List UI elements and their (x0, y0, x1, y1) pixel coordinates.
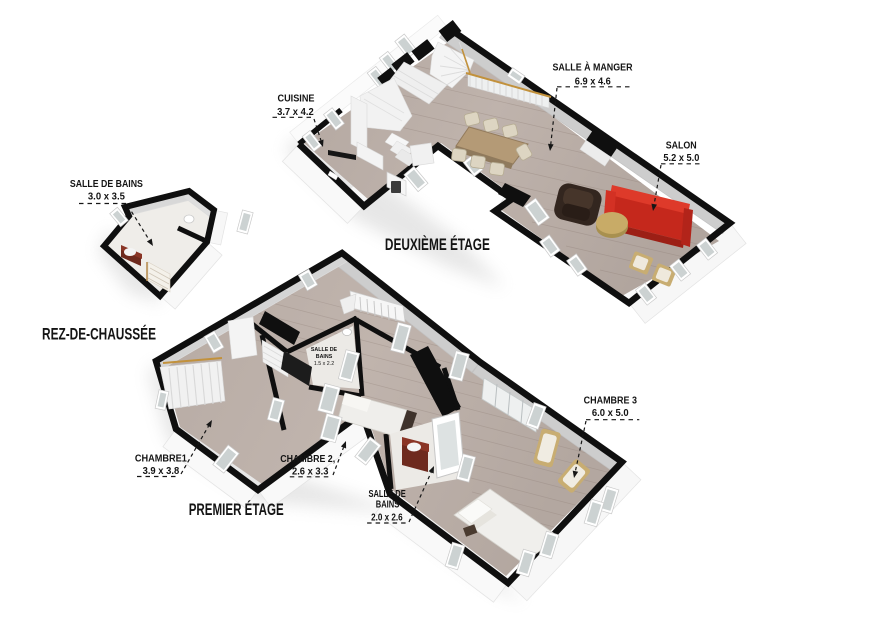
svg-text:SALLE DE: SALLE DE (311, 347, 338, 353)
svg-text:CUISINE: CUISINE (278, 94, 315, 105)
svg-text:2.6 x 3.3: 2.6 x 3.3 (292, 467, 329, 478)
svg-text:SALLE À MANGER: SALLE À MANGER (553, 61, 633, 74)
svg-text:6.0 x 5.0: 6.0 x 5.0 (592, 408, 629, 419)
svg-text:SALON: SALON (666, 141, 697, 152)
svg-text:SALLE DE BAINS: SALLE DE BAINS (70, 179, 143, 190)
svg-text:SALLE DE: SALLE DE (368, 489, 405, 500)
svg-text:3.0 x 3.5: 3.0 x 3.5 (88, 192, 125, 203)
svg-text:CHAMBRE 3: CHAMBRE 3 (584, 396, 637, 407)
svg-text:CHAMBRE 2,: CHAMBRE 2, (280, 454, 335, 465)
svg-text:CHAMBRE1: CHAMBRE1 (135, 453, 187, 464)
svg-text:REZ-DE-CHAUSSÉE: REZ-DE-CHAUSSÉE (42, 324, 156, 343)
svg-text:5.2 x 5.0: 5.2 x 5.0 (663, 153, 699, 164)
svg-text:BAINS: BAINS (376, 499, 400, 510)
svg-text:3.7 x 4.2: 3.7 x 4.2 (277, 107, 314, 118)
svg-text:2.0 x 2.6: 2.0 x 2.6 (371, 512, 403, 523)
svg-text:6.9 x 4.6: 6.9 x 4.6 (575, 77, 611, 88)
svg-text:PREMIER ÉTAGE: PREMIER ÉTAGE (189, 500, 284, 519)
svg-text:1.5 x 2.2: 1.5 x 2.2 (314, 361, 334, 367)
svg-text:BAINS: BAINS (316, 354, 333, 360)
svg-text:3.9 x 3.8: 3.9 x 3.8 (143, 466, 180, 477)
svg-text:DEUXIÈME ÉTAGE: DEUXIÈME ÉTAGE (385, 235, 490, 254)
